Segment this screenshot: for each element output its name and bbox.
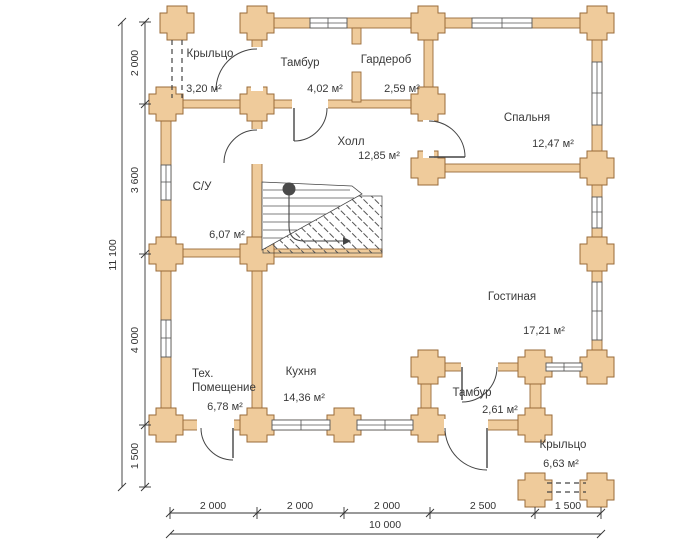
label-bedroom: Спальня bbox=[504, 112, 550, 124]
floor-plan-drawing: Крыльцо 3,20 м² Тамбур 4,02 м² Гардероб … bbox=[0, 0, 685, 548]
dim-left-seg3: 4 000 bbox=[129, 327, 141, 353]
area-tambour-bottom: 2,61 м² bbox=[482, 404, 518, 416]
wall-tambour-wardrobe-stub-top bbox=[352, 28, 361, 44]
dim-bottom-seg4: 2 500 bbox=[470, 500, 496, 512]
window-bathroom-left bbox=[161, 165, 171, 200]
area-living-room: 17,21 м² bbox=[523, 325, 565, 337]
window-living-bottom bbox=[546, 363, 582, 371]
window-tambour-top bbox=[310, 18, 347, 28]
stair-newel-post bbox=[283, 183, 296, 196]
area-hall: 12,85 м² bbox=[358, 150, 400, 162]
dim-bottom-seg5: 1 500 bbox=[555, 500, 581, 512]
label-tambour-bottom: Тамбур bbox=[452, 387, 491, 399]
window-tech-left bbox=[161, 320, 171, 357]
window-kitchen-bottom-left bbox=[272, 420, 330, 430]
label-wardrobe: Гардероб bbox=[361, 54, 412, 66]
floor-plan-canvas: Крыльцо 3,20 м² Тамбур 4,02 м² Гардероб … bbox=[0, 0, 685, 548]
area-tambour-top: 4,02 м² bbox=[307, 83, 343, 95]
dim-left-seg1: 2 000 bbox=[129, 50, 141, 76]
dim-left-seg2: 3 600 bbox=[129, 167, 141, 193]
dim-left-seg4: 1 500 bbox=[129, 443, 141, 469]
window-kitchen-bottom-right bbox=[357, 420, 413, 430]
window-living-right-upper bbox=[592, 197, 602, 228]
label-kitchen: Кухня bbox=[286, 366, 317, 378]
window-bedroom-top bbox=[472, 18, 532, 28]
label-tech-room-line2: Помещение bbox=[192, 382, 256, 394]
dim-left-total: 11 100 bbox=[107, 239, 119, 270]
label-tambour-top: Тамбур bbox=[280, 57, 319, 69]
label-bathroom: С/У bbox=[193, 181, 213, 193]
label-porch-top: Крыльцо bbox=[187, 48, 234, 60]
door-tech-exit bbox=[201, 428, 233, 460]
area-kitchen: 14,36 м² bbox=[283, 392, 325, 404]
dim-bottom-total: 10 000 bbox=[369, 519, 401, 531]
wall-tambour-wardrobe-stub-bottom bbox=[352, 72, 361, 102]
door-tambour-to-hall bbox=[294, 108, 327, 141]
dim-bottom-seg3: 2 000 bbox=[374, 500, 400, 512]
area-bedroom: 12,47 м² bbox=[532, 138, 574, 150]
wall-bedroom-bottom bbox=[425, 164, 602, 172]
label-living-room: Гостиная bbox=[488, 291, 536, 303]
walls-group bbox=[149, 6, 614, 507]
label-porch-bottom: Крыльцо bbox=[540, 439, 587, 451]
area-tech-room: 6,78 м² bbox=[207, 401, 243, 413]
dim-bottom-seg1: 2 000 bbox=[200, 500, 226, 512]
dimension-left: 2 000 3 600 4 000 1 500 11 100 bbox=[107, 18, 151, 491]
window-living-right-lower bbox=[592, 282, 602, 340]
staircase bbox=[262, 182, 382, 253]
window-bedroom-right bbox=[592, 62, 602, 125]
area-bathroom: 6,07 м² bbox=[209, 229, 245, 241]
dim-bottom-seg2: 2 000 bbox=[287, 500, 313, 512]
area-porch-bottom: 6,63 м² bbox=[543, 458, 579, 470]
door-tambour2-exit bbox=[445, 428, 487, 470]
area-wardrobe: 2,59 м² bbox=[384, 83, 420, 95]
label-hall: Холл bbox=[337, 136, 364, 148]
label-tech-room-line1: Тех. bbox=[192, 368, 213, 380]
area-porch-top: 3,20 м² bbox=[186, 83, 222, 95]
